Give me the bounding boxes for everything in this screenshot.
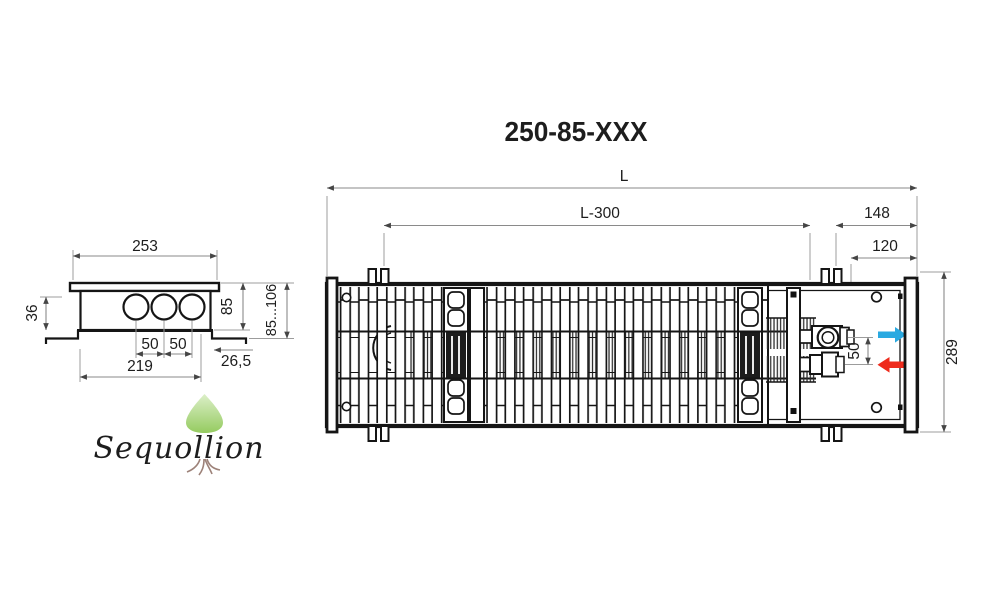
dim-grille-length: L-300 <box>384 205 810 280</box>
dim-width-bottom-label: 219 <box>127 358 153 375</box>
roller-chain-right <box>738 288 762 422</box>
dim-width-top: 253 <box>73 238 217 280</box>
dim-flange-offset: 26,5 <box>214 350 253 370</box>
floor-bracket-right <box>212 330 246 344</box>
floor-bracket-left <box>46 330 78 344</box>
dim-width-label: 289 <box>944 339 961 365</box>
dim-depth-label: 36 <box>24 304 41 321</box>
pipe-circle <box>152 295 177 320</box>
dim-grille-length-label: L-300 <box>580 205 620 222</box>
roller-chain-left <box>444 288 468 422</box>
dim-end-block-label: 148 <box>864 205 890 222</box>
roll-grille <box>337 287 768 423</box>
pipe-circle <box>124 295 149 320</box>
dim-width: 289 <box>920 272 961 432</box>
top-view: L L-300 148 120 <box>327 168 961 441</box>
grille-end-bar <box>787 288 800 422</box>
dim-height-trench: 85...106 <box>249 283 294 339</box>
logo: Sequollion <box>93 394 264 475</box>
dim-connection-inset-label: 120 <box>872 238 898 255</box>
page-title: 250-85-XXX <box>505 116 648 147</box>
tree-canopy-icon <box>186 394 223 433</box>
dim-height-body-label: 85 <box>219 298 236 315</box>
dim-pipe-gap-b-label: 50 <box>169 336 187 353</box>
end-cap-right <box>905 278 917 432</box>
end-cap-left <box>327 278 337 432</box>
dim-pipe-gap-a-label: 50 <box>141 336 159 353</box>
pipe-circle <box>180 295 205 320</box>
dim-flange-offset-label: 26,5 <box>221 353 251 370</box>
dim-width-top-label: 253 <box>132 238 158 255</box>
section-lid <box>70 283 219 291</box>
section-view: 253 36 85 85...106 <box>24 238 294 382</box>
screw-hole <box>872 403 882 413</box>
drawing-page: 250-85-XXX 253 36 85 <box>0 0 1000 600</box>
dim-length: L <box>327 168 917 276</box>
dim-depth: 36 <box>24 297 62 330</box>
dim-height-trench-label: 85...106 <box>264 284 280 336</box>
screw-hole <box>342 293 350 301</box>
dim-height-body: 85 <box>214 283 294 330</box>
screw-hole <box>872 292 882 302</box>
grille-crossbar <box>470 288 484 422</box>
dim-length-label: L <box>620 168 629 185</box>
screw-hole <box>342 402 350 410</box>
brand-name: Sequollion <box>93 431 264 466</box>
dim-valve-spacing-label: 50 <box>846 342 863 360</box>
technical-drawing: 250-85-XXX 253 36 85 <box>0 0 1000 600</box>
dim-end-block: 148 <box>836 205 917 266</box>
